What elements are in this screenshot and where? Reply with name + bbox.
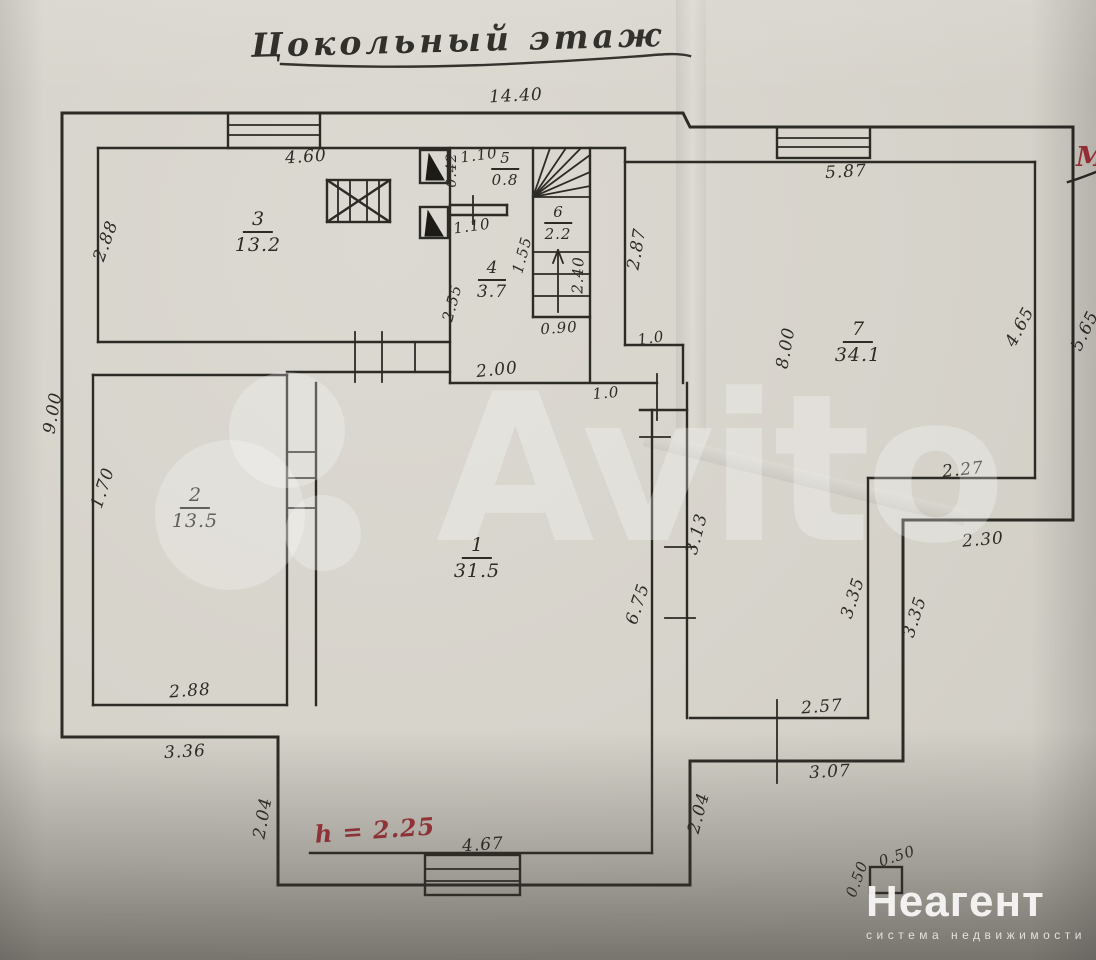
dimension-label: 4.60 <box>284 146 327 169</box>
room-number: 4 <box>478 260 507 281</box>
neagent-logo: Неагент система недвижимости <box>866 880 1086 942</box>
room-area: 13.5 <box>172 510 218 532</box>
room-area: 34.1 <box>835 344 881 366</box>
red-corner-mark: М <box>1076 142 1096 173</box>
room-label-3: 3 13.2 <box>235 208 281 256</box>
floor-plan-photo: { "page": { "title": "Цокольный этаж", "… <box>0 0 1096 960</box>
dimension-label: 2.40 <box>568 256 587 294</box>
dimension-label: 4.67 <box>461 834 504 857</box>
neagent-logo-tagline: система недвижимости <box>866 928 1086 942</box>
dimension-label: 3.36 <box>164 741 207 763</box>
room-area: 0.8 <box>491 171 519 189</box>
room-label-4: 4 3.7 <box>477 258 507 302</box>
room-number: 3 <box>243 210 273 233</box>
dimension-label: 3.07 <box>809 761 852 783</box>
room-label-6: 6 2.2 <box>544 203 572 243</box>
dimension-label: 5.87 <box>825 161 868 183</box>
window-icon-top-left <box>228 113 320 148</box>
dimension-label: 0.42 <box>444 152 460 187</box>
room-area: 31.5 <box>454 560 500 582</box>
room-area: 3.7 <box>477 282 507 302</box>
dimension-label: 1.0 <box>636 327 665 349</box>
dimension-label: 14.40 <box>489 85 544 108</box>
dimension-label: 2.57 <box>800 696 843 719</box>
room-number: 7 <box>843 320 873 343</box>
floor-plan-svg <box>0 0 1096 960</box>
room-number: 1 <box>462 536 492 559</box>
dimension-label: 2.30 <box>961 528 1004 552</box>
room-area: 13.2 <box>235 234 281 256</box>
room-area: 2.2 <box>544 225 572 243</box>
room-label-1: 1 31.5 <box>454 534 500 582</box>
room-label-2: 2 13.5 <box>172 484 218 532</box>
room-number: 6 <box>544 205 572 224</box>
room-label-7: 7 34.1 <box>835 318 881 366</box>
dimension-label: 0.90 <box>540 318 579 339</box>
door-icon-lower <box>420 207 448 238</box>
neagent-logo-name: Неагент <box>866 880 1086 924</box>
dimension-label: 1.0 <box>592 383 620 403</box>
room-number: 2 <box>180 486 210 509</box>
window-icon-bottom <box>425 855 520 895</box>
chimney-hatch-icon <box>327 180 390 222</box>
dimension-label: 2.88 <box>168 680 211 703</box>
window-icon-top-right <box>777 127 870 158</box>
